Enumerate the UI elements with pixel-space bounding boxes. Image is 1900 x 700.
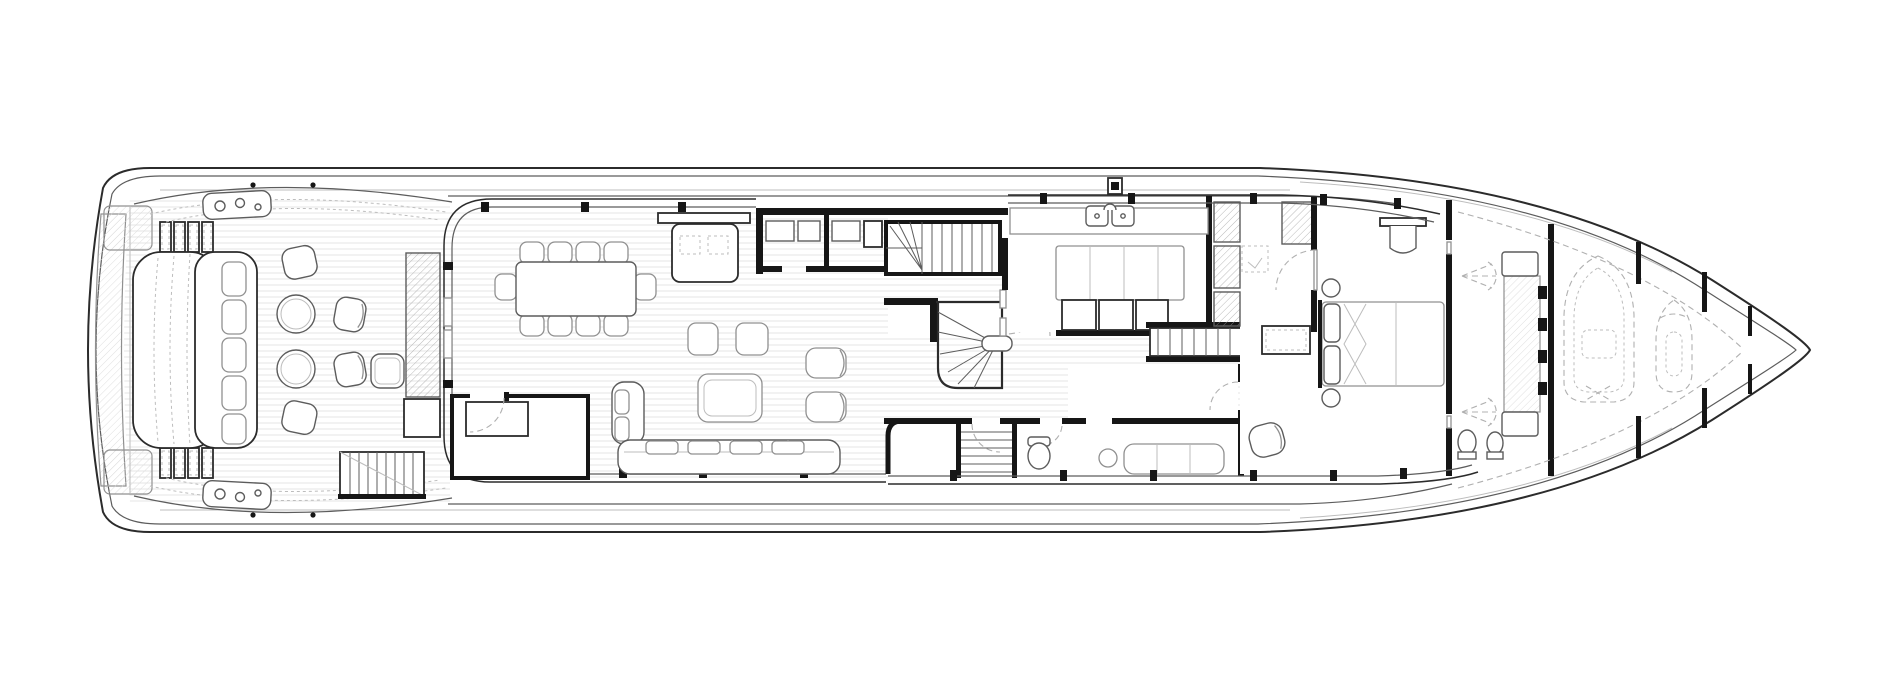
upper-deck-staircase	[886, 222, 1000, 274]
master-forward-bulkhead	[1446, 200, 1452, 476]
galley	[1002, 196, 1212, 336]
transom-step-top	[104, 206, 152, 250]
galley-left-wall	[1002, 238, 1008, 290]
aft-sideboard	[406, 253, 440, 397]
study-sofa	[1124, 444, 1224, 474]
bedside-table	[1322, 279, 1340, 297]
midship-left-wall	[756, 208, 763, 274]
master-door-leaf	[1314, 250, 1317, 290]
lounge-armchair	[806, 348, 846, 378]
pantry-bottom-wall	[806, 266, 886, 272]
midship-top-wall	[756, 208, 1008, 215]
pantry-bottom-wall	[756, 266, 782, 272]
study-side-table	[1099, 449, 1117, 467]
salon-aft-door-panel	[444, 298, 452, 326]
transom-step-bottom	[104, 450, 152, 494]
aft-round-table	[277, 350, 315, 388]
lounge-armchair	[806, 392, 846, 422]
master-entry-wall	[1311, 290, 1317, 332]
galley-island	[1056, 246, 1184, 300]
aft-round-table	[277, 295, 315, 333]
toilet	[1458, 430, 1476, 459]
stanchion-dot	[310, 512, 315, 517]
aft-armchair	[332, 296, 367, 334]
stanchion-dot	[250, 512, 255, 517]
aft-side-table	[371, 354, 404, 388]
lounge-pouf	[736, 323, 768, 355]
pantry-divider-wall	[824, 215, 829, 268]
lounge-pouf	[688, 323, 718, 355]
salon-service-room	[452, 392, 588, 478]
side-boarding-stairs	[338, 452, 426, 499]
stern-sofa	[133, 252, 257, 448]
foredeck-bulkhead	[1548, 224, 1554, 476]
mooring-station-top	[202, 190, 271, 220]
master-suite	[1214, 196, 1452, 476]
stanchion-dot	[250, 182, 255, 187]
transom-step-band	[96, 214, 127, 486]
exhaust-funnel-mark	[1108, 178, 1122, 194]
yacht-main-deck-plan	[0, 0, 1900, 700]
galley-top-counter	[1010, 208, 1208, 234]
deck-plan-drawing	[0, 0, 1900, 700]
aft-armchair	[332, 351, 367, 389]
bedside-table	[1322, 389, 1340, 407]
salon-aft-door-panel	[444, 330, 452, 358]
mooring-station-bottom	[202, 480, 271, 510]
aft-cabinet	[404, 399, 440, 437]
dining-table	[516, 262, 636, 316]
master-bed	[1318, 300, 1444, 388]
foyer-planks	[884, 274, 1004, 300]
double-vanity	[1502, 252, 1547, 436]
stanchion-dot	[310, 182, 315, 187]
bidet	[1487, 432, 1503, 459]
salon-tv-cabinet	[658, 213, 750, 282]
